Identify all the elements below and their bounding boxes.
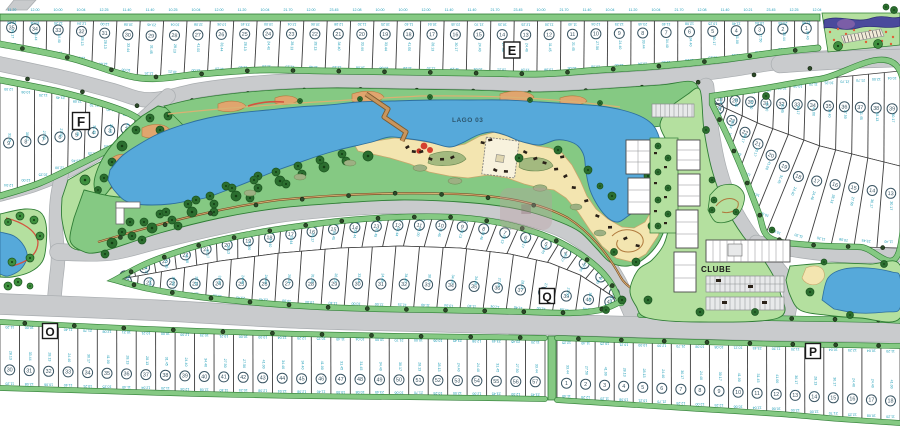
svg-text:10.21: 10.21: [638, 399, 647, 403]
svg-text:23.45: 23.45: [531, 392, 540, 396]
svg-text:12.04: 12.04: [287, 22, 296, 26]
svg-text:23.45: 23.45: [375, 390, 384, 394]
svg-text:28.13: 28.13: [642, 369, 646, 378]
svg-text:12.25: 12.25: [398, 302, 407, 307]
svg-text:37: 37: [143, 372, 149, 378]
svg-text:12.04: 12.04: [278, 389, 287, 393]
svg-text:11.40: 11.40: [662, 22, 671, 26]
svg-text:28.13: 28.13: [109, 124, 113, 133]
svg-text:24.40: 24.40: [266, 41, 270, 50]
svg-text:8: 8: [641, 31, 644, 37]
svg-text:33.44: 33.44: [289, 235, 294, 244]
svg-text:24.40: 24.40: [67, 353, 71, 362]
svg-text:12.25: 12.25: [615, 22, 624, 26]
svg-text:39: 39: [889, 107, 895, 113]
svg-text:23.45: 23.45: [147, 22, 156, 26]
svg-text:48: 48: [357, 377, 363, 383]
svg-text:24.40: 24.40: [699, 371, 703, 380]
svg-text:8: 8: [698, 388, 701, 394]
svg-text:21: 21: [335, 32, 341, 38]
svg-text:34: 34: [85, 370, 91, 376]
svg-text:10.04: 10.04: [77, 8, 86, 12]
svg-text:10.06: 10.06: [311, 22, 320, 26]
svg-text:15: 15: [850, 185, 857, 192]
svg-text:11.20: 11.20: [8, 8, 17, 12]
svg-text:41.00: 41.00: [890, 380, 894, 389]
svg-text:10.08: 10.08: [715, 345, 724, 349]
svg-text:30.17: 30.17: [832, 377, 836, 386]
svg-text:10.04: 10.04: [829, 348, 838, 352]
svg-text:10.00: 10.00: [399, 8, 408, 12]
svg-text:38: 38: [873, 106, 879, 112]
svg-text:21.70: 21.70: [676, 344, 685, 348]
svg-text:10.25: 10.25: [39, 173, 48, 177]
svg-text:33.44: 33.44: [384, 42, 388, 51]
svg-text:11.40: 11.40: [468, 8, 477, 12]
svg-text:41: 41: [221, 375, 227, 381]
svg-text:31.45: 31.45: [310, 274, 315, 283]
svg-text:14: 14: [499, 32, 505, 38]
svg-text:10.21: 10.21: [734, 345, 743, 349]
svg-text:46: 46: [318, 377, 324, 383]
svg-text:11.20: 11.20: [358, 22, 367, 26]
svg-text:24.40: 24.40: [618, 40, 622, 49]
svg-text:12.00: 12.00: [215, 8, 224, 12]
svg-text:12.04: 12.04: [753, 405, 762, 409]
svg-text:12.25: 12.25: [100, 8, 109, 12]
svg-text:10.04: 10.04: [606, 8, 615, 12]
svg-text:27.50: 27.50: [595, 41, 599, 50]
svg-text:52: 52: [435, 378, 441, 384]
svg-text:38: 38: [162, 373, 168, 379]
svg-text:17: 17: [868, 398, 874, 404]
svg-text:41.00: 41.00: [184, 254, 189, 263]
svg-text:34.40: 34.40: [148, 277, 153, 286]
svg-text:23.45: 23.45: [638, 22, 647, 26]
svg-text:10.04: 10.04: [888, 76, 897, 80]
svg-text:21.70: 21.70: [675, 8, 684, 12]
svg-text:10.25: 10.25: [825, 81, 834, 85]
svg-text:12.04: 12.04: [813, 8, 822, 12]
svg-text:31.45: 31.45: [8, 133, 12, 142]
svg-text:1: 1: [565, 381, 568, 387]
svg-text:10.08: 10.08: [695, 344, 704, 348]
svg-text:11.40: 11.40: [219, 388, 228, 392]
svg-text:11.20: 11.20: [5, 381, 14, 385]
svg-text:34.40: 34.40: [805, 31, 809, 40]
svg-text:30.17: 30.17: [718, 372, 722, 381]
svg-text:28.13: 28.13: [437, 363, 441, 372]
svg-text:55: 55: [493, 379, 499, 385]
svg-text:23.45: 23.45: [514, 8, 523, 12]
svg-text:10.04: 10.04: [261, 8, 270, 12]
svg-text:21.70: 21.70: [284, 8, 293, 12]
svg-text:31.45: 31.45: [571, 42, 575, 51]
svg-text:12.04: 12.04: [591, 22, 600, 26]
svg-text:34.40: 34.40: [665, 39, 669, 48]
svg-text:10.21: 10.21: [168, 69, 177, 73]
svg-text:14: 14: [869, 188, 876, 195]
svg-text:7: 7: [679, 387, 682, 393]
svg-text:17: 17: [429, 32, 435, 38]
svg-text:10.06: 10.06: [395, 390, 404, 394]
svg-text:10.06: 10.06: [734, 404, 743, 408]
svg-text:10.08: 10.08: [619, 397, 628, 401]
svg-text:27: 27: [195, 33, 201, 39]
svg-text:10.00: 10.00: [537, 8, 546, 12]
svg-text:33: 33: [424, 282, 431, 289]
svg-text:12.00: 12.00: [100, 22, 109, 26]
svg-text:41.00: 41.00: [196, 43, 200, 52]
svg-text:41.00: 41.00: [811, 107, 815, 116]
svg-text:31.45: 31.45: [548, 43, 552, 52]
svg-text:12.00: 12.00: [810, 409, 819, 413]
svg-text:13: 13: [792, 393, 798, 399]
svg-text:12.08: 12.08: [685, 22, 694, 26]
svg-text:23.45: 23.45: [330, 8, 339, 12]
svg-text:30.17: 30.17: [891, 113, 895, 122]
svg-text:30: 30: [125, 32, 131, 38]
svg-text:24.40: 24.40: [57, 34, 61, 43]
svg-text:24.40: 24.40: [184, 358, 188, 367]
svg-text:28.13: 28.13: [48, 352, 52, 361]
svg-text:11.40: 11.40: [146, 8, 155, 12]
svg-text:39: 39: [182, 374, 188, 380]
svg-text:Q: Q: [542, 290, 551, 304]
svg-text:23: 23: [288, 32, 294, 38]
svg-text:10.08: 10.08: [356, 390, 365, 394]
svg-text:28.13: 28.13: [226, 245, 230, 254]
svg-text:29: 29: [148, 33, 154, 39]
svg-text:41.00: 41.00: [247, 241, 251, 250]
svg-text:11.20: 11.20: [238, 8, 247, 12]
svg-text:31.45: 31.45: [217, 275, 222, 284]
svg-text:24.40: 24.40: [456, 363, 460, 372]
svg-text:10.00: 10.00: [336, 390, 345, 394]
svg-text:11.40: 11.40: [562, 394, 571, 398]
svg-text:27.50: 27.50: [515, 364, 519, 373]
svg-text:34.40: 34.40: [379, 362, 383, 371]
svg-text:31.45: 31.45: [859, 111, 863, 120]
svg-text:21.70: 21.70: [414, 391, 423, 395]
svg-text:CLUBE: CLUBE: [701, 265, 731, 274]
svg-text:31.45: 31.45: [164, 357, 168, 366]
svg-text:50: 50: [396, 378, 402, 384]
svg-text:12.00: 12.00: [4, 87, 13, 91]
svg-text:24.40: 24.40: [851, 378, 855, 387]
svg-text:34.40: 34.40: [827, 108, 831, 117]
svg-text:23.45: 23.45: [753, 346, 762, 350]
svg-text:33.44: 33.44: [566, 365, 570, 374]
svg-text:28.13: 28.13: [431, 42, 435, 51]
svg-text:10.04: 10.04: [428, 22, 437, 26]
svg-text:28.13: 28.13: [290, 41, 294, 50]
svg-text:30.17: 30.17: [205, 249, 210, 258]
svg-text:10: 10: [735, 390, 741, 396]
svg-text:11.20: 11.20: [791, 347, 800, 351]
svg-text:27.50: 27.50: [843, 110, 847, 119]
svg-text:11.40: 11.40: [568, 22, 577, 26]
svg-text:24: 24: [265, 31, 271, 37]
svg-text:15: 15: [476, 32, 482, 38]
svg-text:41.00: 41.00: [735, 35, 739, 44]
svg-text:12.25: 12.25: [715, 403, 724, 407]
svg-text:11.20: 11.20: [629, 8, 638, 12]
svg-text:20: 20: [359, 32, 365, 38]
svg-text:12.08: 12.08: [353, 8, 362, 12]
svg-text:10.25: 10.25: [239, 388, 248, 392]
svg-text:12.00: 12.00: [31, 8, 40, 12]
svg-text:10.04: 10.04: [652, 8, 661, 12]
svg-text:12.08: 12.08: [25, 382, 34, 386]
svg-text:33: 33: [65, 370, 71, 376]
svg-text:34.40: 34.40: [203, 358, 207, 367]
svg-text:12: 12: [773, 392, 779, 398]
svg-text:10.08: 10.08: [867, 413, 876, 417]
svg-text:10.21: 10.21: [83, 384, 92, 388]
svg-text:28.13: 28.13: [333, 273, 338, 282]
svg-text:11.20: 11.20: [600, 396, 609, 400]
svg-text:10.00: 10.00: [376, 8, 385, 12]
svg-text:F: F: [77, 114, 85, 129]
svg-text:28.13: 28.13: [103, 40, 107, 49]
svg-text:12.25: 12.25: [521, 22, 530, 26]
svg-text:21.70: 21.70: [829, 411, 838, 415]
svg-text:11.20: 11.20: [886, 349, 895, 353]
svg-text:54: 54: [474, 379, 480, 385]
svg-text:28.13: 28.13: [417, 362, 421, 371]
svg-text:6: 6: [660, 386, 663, 392]
svg-text:33.44: 33.44: [360, 42, 364, 51]
svg-text:28.13: 28.13: [145, 356, 149, 365]
svg-text:27.50: 27.50: [585, 366, 589, 375]
svg-text:53: 53: [454, 378, 460, 384]
svg-text:15: 15: [830, 396, 836, 402]
svg-text:31.45: 31.45: [495, 363, 499, 372]
svg-text:21.70: 21.70: [560, 8, 569, 12]
svg-text:25: 25: [242, 32, 248, 38]
svg-text:10.04: 10.04: [867, 348, 876, 352]
svg-text:11.40: 11.40: [317, 390, 326, 394]
svg-text:27.50: 27.50: [759, 33, 763, 42]
svg-text:12.25: 12.25: [790, 8, 799, 12]
svg-text:24.40: 24.40: [171, 276, 176, 285]
svg-text:33.44: 33.44: [28, 352, 32, 361]
svg-text:10.06: 10.06: [44, 383, 53, 387]
svg-text:30.17: 30.17: [398, 362, 402, 371]
svg-text:12.04: 12.04: [141, 386, 150, 390]
svg-text:21.70: 21.70: [491, 8, 500, 12]
svg-text:24.40: 24.40: [263, 274, 268, 283]
svg-text:10.08: 10.08: [124, 22, 133, 26]
svg-text:E: E: [508, 43, 517, 58]
svg-text:10.25: 10.25: [498, 22, 507, 26]
svg-text:12.25: 12.25: [676, 401, 685, 405]
svg-text:12.00: 12.00: [453, 391, 462, 395]
svg-text:28: 28: [171, 33, 177, 39]
svg-text:31.45: 31.45: [734, 98, 738, 107]
svg-text:34.40: 34.40: [281, 360, 285, 369]
svg-text:41.00: 41.00: [737, 373, 741, 382]
svg-text:11.40: 11.40: [583, 8, 592, 12]
svg-text:31: 31: [378, 282, 385, 289]
svg-text:12.00: 12.00: [872, 77, 881, 81]
svg-text:11.40: 11.40: [445, 8, 454, 12]
svg-text:47: 47: [338, 377, 344, 383]
svg-text:23.45: 23.45: [778, 21, 787, 25]
svg-text:3: 3: [603, 383, 606, 389]
svg-text:12.08: 12.08: [200, 387, 209, 391]
svg-text:44: 44: [279, 376, 285, 382]
svg-text:11.20: 11.20: [161, 386, 170, 390]
svg-text:30.17: 30.17: [87, 354, 91, 363]
svg-text:28.13: 28.13: [194, 276, 199, 285]
svg-text:11.40: 11.40: [123, 8, 132, 12]
svg-text:21.70: 21.70: [474, 22, 483, 26]
svg-text:10.00: 10.00: [264, 22, 273, 26]
svg-text:45: 45: [299, 377, 305, 383]
svg-text:21.70: 21.70: [657, 400, 666, 404]
svg-text:33.44: 33.44: [219, 42, 223, 51]
svg-text:27.50: 27.50: [42, 131, 46, 140]
svg-text:24.40: 24.40: [524, 43, 528, 52]
svg-text:11: 11: [754, 391, 760, 397]
svg-text:41.00: 41.00: [106, 355, 110, 364]
svg-text:28.13: 28.13: [173, 44, 177, 53]
svg-text:28.13: 28.13: [313, 41, 317, 50]
svg-text:23.45: 23.45: [492, 392, 501, 396]
svg-text:41.00: 41.00: [604, 367, 608, 376]
svg-text:33.44: 33.44: [34, 31, 38, 40]
svg-text:30.17: 30.17: [454, 42, 458, 51]
svg-text:5: 5: [641, 385, 644, 391]
svg-text:10.04: 10.04: [30, 21, 39, 25]
svg-text:27.50: 27.50: [223, 359, 227, 368]
svg-text:12.00: 12.00: [696, 402, 705, 406]
svg-text:12.25: 12.25: [848, 348, 857, 352]
svg-text:4: 4: [622, 384, 625, 390]
svg-text:12.25: 12.25: [848, 412, 857, 416]
svg-text:10.06: 10.06: [772, 407, 781, 411]
svg-text:24.40: 24.40: [380, 273, 385, 282]
svg-text:28.13: 28.13: [9, 351, 13, 360]
svg-text:34.40: 34.40: [688, 38, 692, 47]
svg-text:30.17: 30.17: [794, 375, 798, 384]
svg-text:24.40: 24.40: [478, 43, 482, 52]
svg-text:12.00: 12.00: [791, 408, 800, 412]
svg-text:28.13: 28.13: [243, 42, 247, 51]
svg-text:21.70: 21.70: [840, 79, 849, 83]
svg-text:11.40: 11.40: [802, 21, 811, 25]
svg-text:10.25: 10.25: [433, 391, 442, 395]
svg-text:41.00: 41.00: [407, 42, 411, 51]
svg-text:10.04: 10.04: [171, 22, 180, 26]
svg-text:12.08: 12.08: [258, 389, 267, 393]
svg-text:31: 31: [102, 31, 108, 37]
svg-text:21.70: 21.70: [856, 78, 865, 82]
svg-text:28.13: 28.13: [813, 376, 817, 385]
svg-text:11.40: 11.40: [122, 385, 131, 389]
svg-text:56: 56: [513, 379, 519, 385]
svg-text:31.45: 31.45: [149, 45, 153, 54]
svg-text:10.21: 10.21: [744, 8, 753, 12]
svg-text:32: 32: [46, 369, 52, 375]
svg-text:12.00: 12.00: [22, 178, 31, 182]
svg-text:41.00: 41.00: [775, 374, 779, 383]
svg-text:6: 6: [688, 30, 691, 36]
svg-text:12.08: 12.08: [194, 22, 203, 26]
svg-text:30.17: 30.17: [712, 36, 716, 45]
svg-text:5: 5: [711, 29, 714, 35]
svg-text:30.17: 30.17: [25, 132, 29, 141]
svg-text:31.45: 31.45: [92, 125, 96, 134]
svg-text:40: 40: [201, 374, 207, 380]
svg-text:11.20: 11.20: [886, 415, 895, 419]
svg-text:42: 42: [240, 375, 246, 381]
svg-text:24.40: 24.40: [661, 369, 665, 378]
svg-text:12: 12: [546, 32, 552, 38]
svg-text:41.00: 41.00: [320, 361, 324, 370]
svg-text:14: 14: [811, 394, 817, 400]
svg-text:10.04: 10.04: [192, 8, 201, 12]
svg-text:51: 51: [416, 378, 422, 384]
svg-text:28.13: 28.13: [287, 274, 292, 283]
svg-text:32: 32: [78, 29, 84, 35]
svg-text:28.13: 28.13: [623, 368, 627, 377]
svg-text:28.13: 28.13: [126, 355, 130, 364]
svg-text:12.25: 12.25: [144, 71, 153, 75]
svg-text:10: 10: [593, 32, 599, 38]
svg-text:11.40: 11.40: [721, 8, 730, 12]
svg-text:9: 9: [718, 389, 721, 395]
svg-text:49: 49: [377, 378, 383, 384]
svg-text:LAGO 03: LAGO 03: [452, 117, 483, 124]
svg-text:16: 16: [452, 32, 458, 38]
svg-text:9: 9: [618, 31, 621, 37]
svg-text:13: 13: [523, 32, 529, 38]
svg-text:10.25: 10.25: [708, 21, 717, 25]
svg-text:34.40: 34.40: [403, 273, 408, 282]
svg-text:10.00: 10.00: [54, 8, 63, 12]
svg-text:18: 18: [888, 399, 894, 405]
svg-text:16: 16: [849, 397, 855, 403]
svg-text:27.50: 27.50: [242, 359, 246, 368]
svg-text:24.40: 24.40: [268, 238, 272, 247]
svg-text:10.25: 10.25: [381, 22, 390, 26]
svg-text:10.04: 10.04: [755, 21, 764, 25]
svg-text:24.40: 24.40: [476, 363, 480, 372]
svg-text:■: ■: [520, 198, 532, 220]
svg-text:11.40: 11.40: [884, 239, 893, 243]
svg-text:10.25: 10.25: [103, 384, 112, 388]
svg-text:11.40: 11.40: [404, 22, 413, 26]
svg-text:12.08: 12.08: [698, 8, 707, 12]
svg-text:12.04: 12.04: [4, 183, 13, 187]
svg-text:30.17: 30.17: [680, 370, 684, 379]
svg-text:33.44: 33.44: [534, 364, 538, 373]
svg-text:36: 36: [124, 372, 130, 378]
svg-text:32: 32: [401, 282, 408, 289]
svg-text:11.40: 11.40: [732, 21, 741, 25]
svg-text:33.44: 33.44: [126, 43, 130, 52]
svg-text:12.00: 12.00: [422, 8, 431, 12]
svg-text:12.00: 12.00: [511, 392, 520, 396]
svg-text:30: 30: [7, 368, 13, 374]
svg-text:31.45: 31.45: [756, 374, 760, 383]
svg-text:27.50: 27.50: [749, 100, 753, 109]
svg-text:23.45: 23.45: [451, 22, 460, 26]
svg-text:22: 22: [312, 32, 318, 38]
